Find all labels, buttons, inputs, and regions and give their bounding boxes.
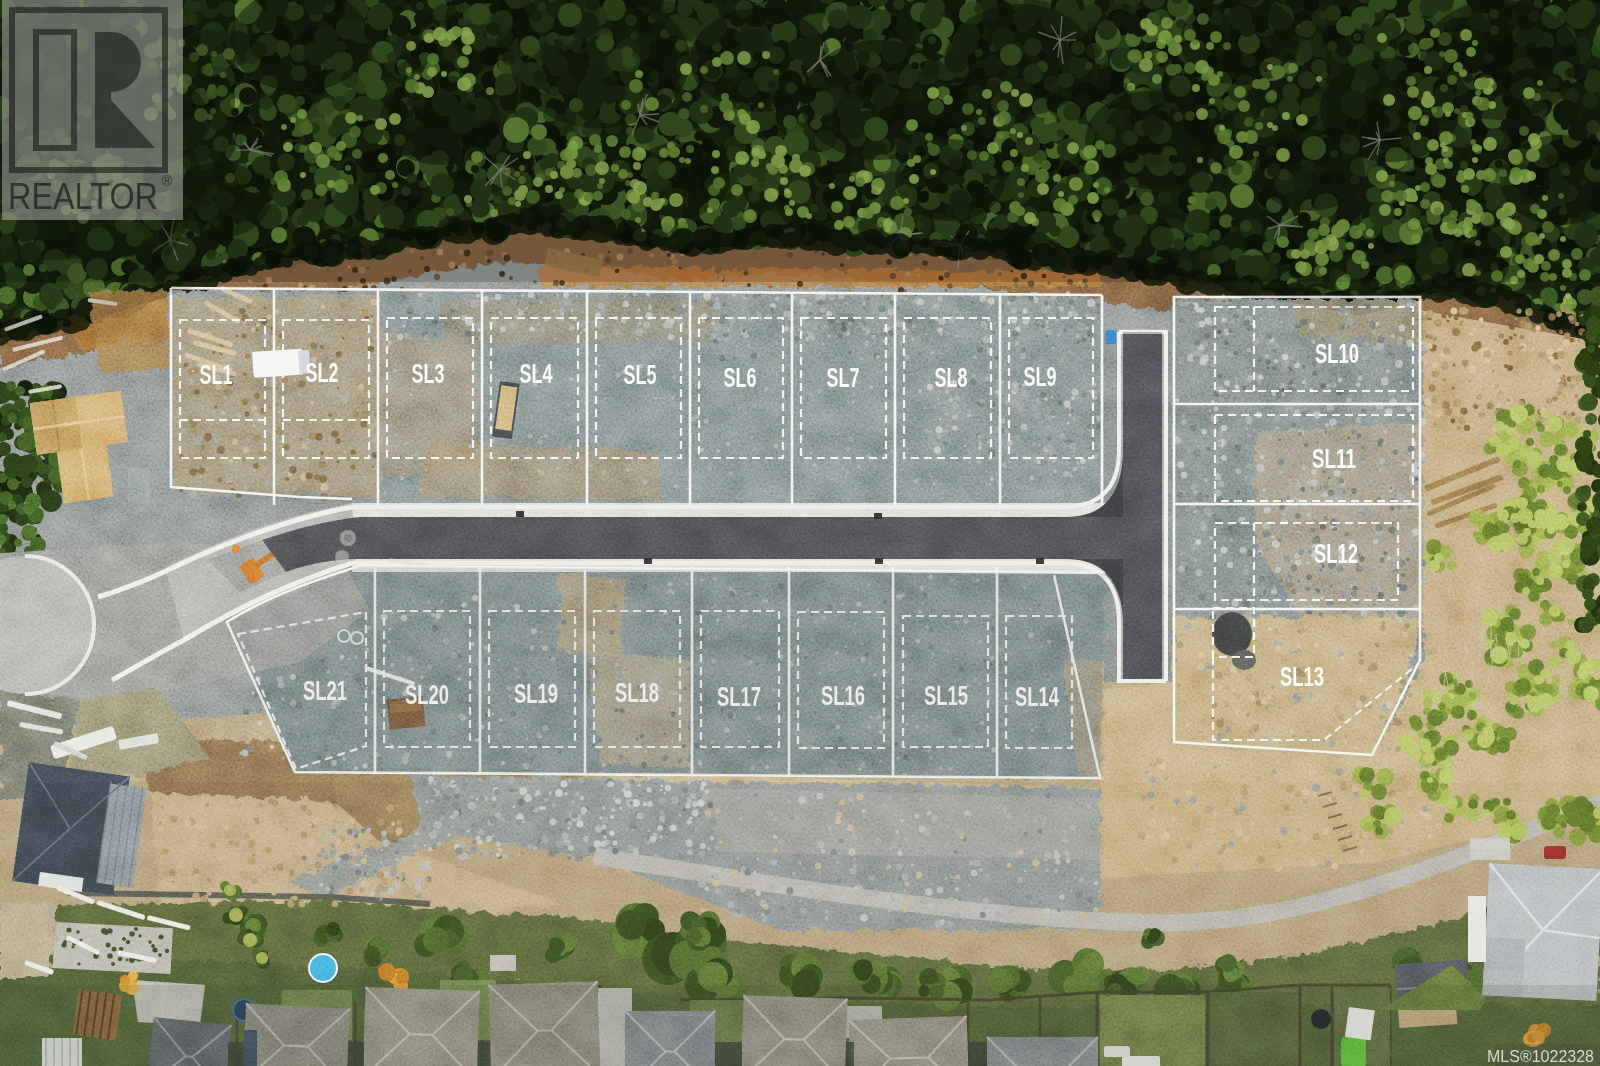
svg-text:®: ® (162, 173, 173, 189)
svg-text:REALTOR: REALTOR (8, 176, 158, 217)
svg-text:MLS®1022328: MLS®1022328 (1487, 1048, 1594, 1065)
